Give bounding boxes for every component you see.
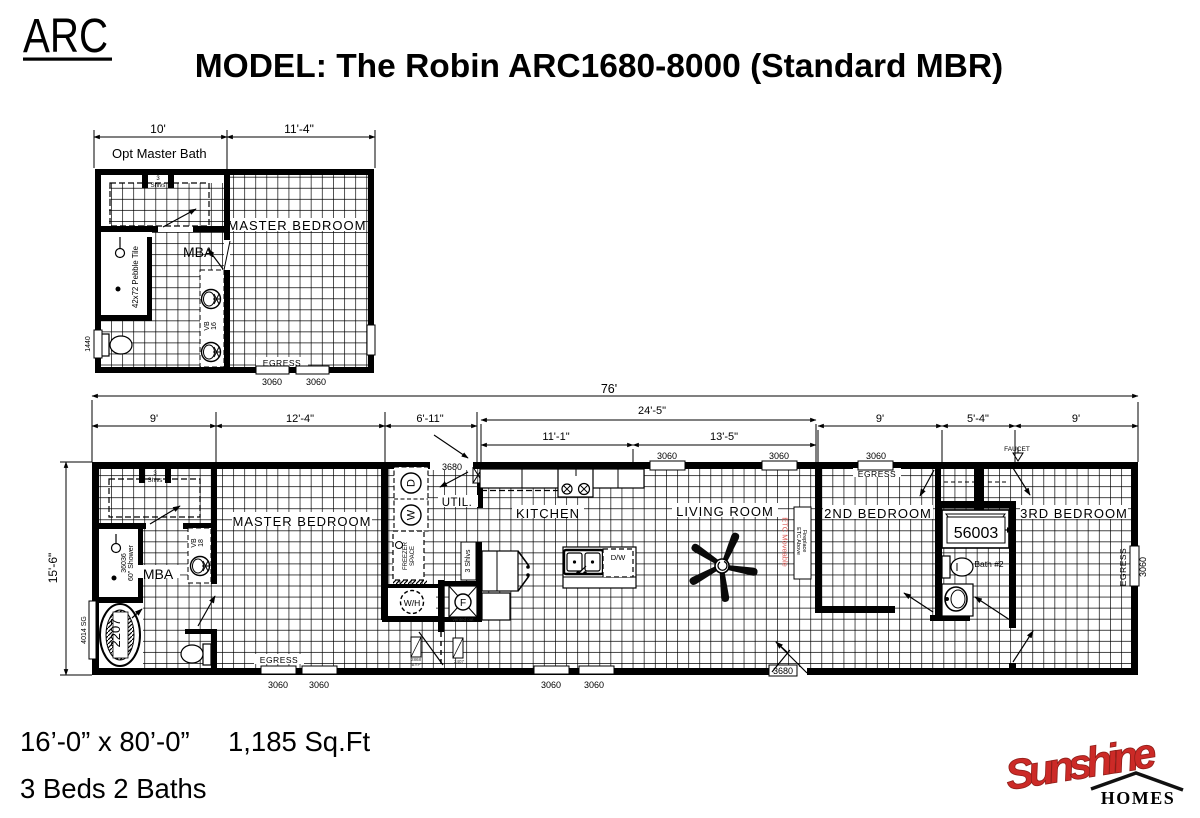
svg-text:vented out: vented out: [452, 617, 474, 622]
svg-text:3 Shlvs: 3 Shlvs: [465, 549, 472, 572]
svg-text:3060: 3060: [262, 377, 282, 387]
svg-text:3060: 3060: [306, 377, 326, 387]
svg-text:36036: 36036: [121, 553, 128, 573]
svg-text:BYP: BYP: [411, 662, 420, 667]
svg-text:2407: 2407: [454, 659, 465, 664]
svg-text:24'-5": 24'-5": [638, 405, 666, 417]
svg-text:1,185 Sq.Ft: 1,185 Sq.Ft: [228, 726, 371, 757]
svg-text:MASTER BEDROOM: MASTER BEDROOM: [233, 514, 372, 529]
svg-text:3 Beds 2 Baths: 3 Beds 2 Baths: [20, 773, 207, 804]
svg-text:UTIL.: UTIL.: [442, 497, 473, 509]
svg-text:1440: 1440: [85, 336, 92, 352]
svg-text:EGRESS: EGRESS: [1118, 548, 1128, 586]
svg-text:6'-11": 6'-11": [416, 413, 443, 425]
svg-text:MBA: MBA: [183, 244, 214, 260]
svg-text:W/H: W/H: [404, 598, 421, 608]
svg-text:F: F: [460, 598, 466, 609]
svg-text:18: 18: [198, 539, 205, 547]
svg-text:W: W: [406, 509, 418, 520]
svg-text:D: D: [406, 479, 418, 487]
svg-text:3060: 3060: [268, 680, 288, 690]
svg-text:FREEZER: FREEZER: [403, 541, 409, 570]
svg-text:76': 76': [601, 382, 617, 396]
svg-text:9': 9': [1072, 413, 1080, 425]
svg-text:VB: VB: [204, 321, 211, 331]
svg-text:13'-5": 13'-5": [710, 431, 738, 443]
svg-text:10': 10': [150, 122, 166, 136]
svg-text:MBA: MBA: [143, 566, 174, 582]
svg-text:2ND BEDROOM: 2ND BEDROOM: [824, 506, 932, 521]
svg-text:Bath #2: Bath #2: [974, 559, 1004, 569]
svg-text:56003: 56003: [954, 525, 999, 542]
svg-text:2207: 2207: [108, 619, 123, 648]
svg-text:3060: 3060: [541, 680, 561, 690]
svg-text:3060: 3060: [769, 451, 789, 461]
svg-text:16: 16: [211, 322, 218, 330]
svg-text:ETC Moveable: ETC Moveable: [781, 517, 790, 567]
svg-text:FAUCET: FAUCET: [1004, 446, 1030, 453]
svg-text:9': 9': [876, 413, 884, 425]
svg-text:EGRESS: EGRESS: [260, 655, 298, 665]
svg-text:Shlvs: Shlvs: [151, 183, 166, 189]
svg-text:3060: 3060: [657, 451, 677, 461]
svg-text:12'-4": 12'-4": [286, 413, 314, 425]
svg-text:9': 9': [150, 413, 158, 425]
svg-text:3060: 3060: [866, 451, 886, 461]
svg-text:3RD BEDROOM: 3RD BEDROOM: [1020, 506, 1128, 521]
svg-text:D/W: D/W: [611, 553, 627, 562]
svg-text:HOMES: HOMES: [1101, 788, 1176, 808]
svg-text:KITCHEN: KITCHEN: [516, 506, 580, 521]
svg-text:16’-0” x 80’-0”: 16’-0” x 80’-0”: [20, 726, 190, 757]
svg-text:3060: 3060: [309, 680, 329, 690]
svg-text:ARC: ARC: [23, 10, 108, 63]
svg-text:LIVING ROOM: LIVING ROOM: [676, 504, 774, 519]
svg-text:11'-1": 11'-1": [542, 431, 569, 443]
svg-text:60" Shower: 60" Shower: [128, 544, 135, 581]
svg-text:3680: 3680: [442, 462, 462, 472]
svg-text:3060: 3060: [584, 680, 604, 690]
svg-text:MASTER BEDROOM: MASTER BEDROOM: [228, 218, 367, 233]
svg-text:15'-6": 15'-6": [46, 553, 60, 584]
svg-text:Fireplace: Fireplace: [801, 530, 807, 553]
svg-text:Opt Master Bath: Opt Master Bath: [112, 146, 207, 161]
svg-text:VB: VB: [191, 538, 198, 548]
svg-text:MODEL: The Robin ARC1680-8000: MODEL: The Robin ARC1680-8000 (Standard …: [195, 48, 1003, 85]
svg-text:42x72 Pebble Tile: 42x72 Pebble Tile: [131, 246, 140, 308]
svg-text:5'-4": 5'-4": [967, 413, 989, 425]
svg-text:ETC Above: ETC Above: [795, 527, 801, 555]
svg-text:4014 SG: 4014 SG: [81, 616, 88, 644]
svg-text:3060: 3060: [1138, 557, 1148, 577]
svg-text:11'-4": 11'-4": [284, 122, 314, 136]
svg-text:SPACE: SPACE: [410, 546, 416, 566]
